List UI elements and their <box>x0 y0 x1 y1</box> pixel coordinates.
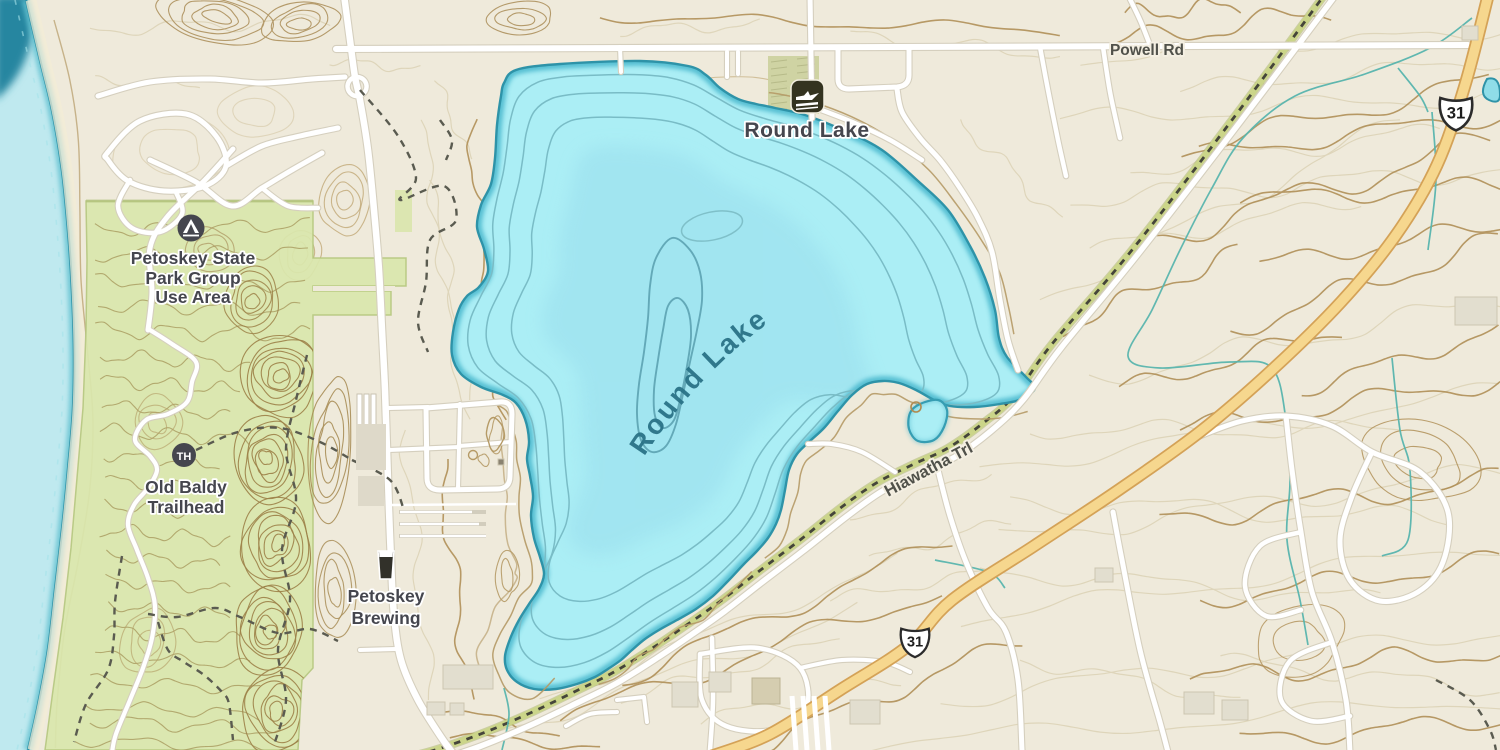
svg-text:Trailhead: Trailhead <box>148 497 225 517</box>
svg-text:31: 31 <box>1447 103 1466 122</box>
svg-text:TH: TH <box>177 451 192 463</box>
svg-text:31: 31 <box>907 635 923 651</box>
svg-text:Petoskey State: Petoskey State <box>131 248 256 268</box>
svg-text:Use Area: Use Area <box>155 287 230 307</box>
svg-text:Old Baldy: Old Baldy <box>145 477 227 497</box>
svg-text:Powell Rd: Powell Rd <box>1110 42 1184 59</box>
svg-text:Round Lake: Round Lake <box>744 119 869 142</box>
svg-text:Brewing: Brewing <box>351 608 420 628</box>
svg-text:Petoskey: Petoskey <box>348 586 425 606</box>
svg-text:Park Group: Park Group <box>145 268 240 288</box>
